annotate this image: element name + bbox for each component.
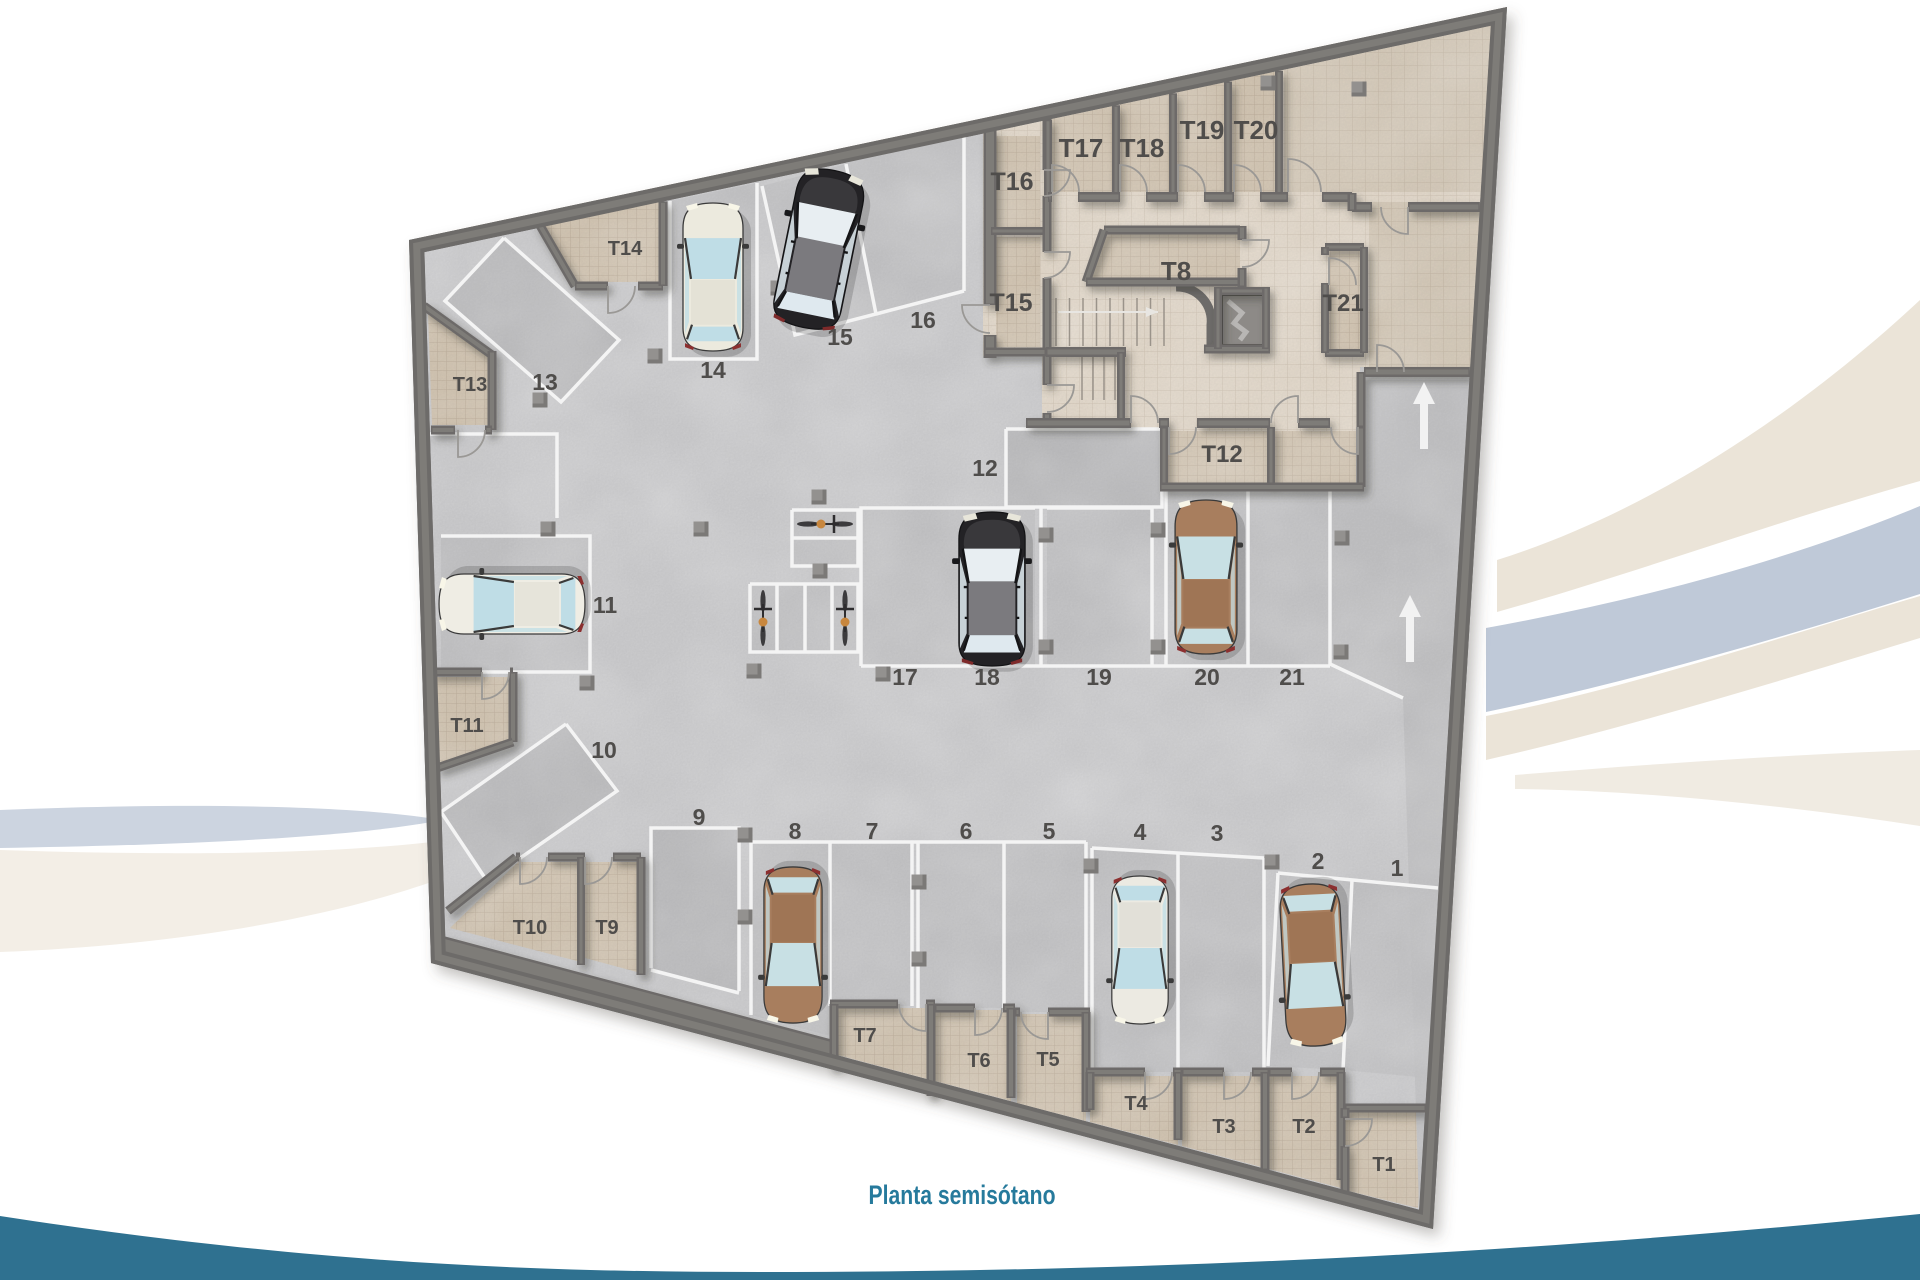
svg-text:T6: T6: [967, 1050, 990, 1072]
svg-text:T3: T3: [1212, 1116, 1235, 1138]
svg-text:Planta semisótano: Planta semisótano: [869, 1180, 1056, 1210]
svg-text:20: 20: [1194, 664, 1220, 690]
svg-text:19: 19: [1086, 664, 1112, 690]
svg-text:4: 4: [1134, 819, 1147, 845]
svg-text:T13: T13: [453, 374, 487, 396]
svg-text:17: 17: [892, 664, 918, 690]
svg-text:13: 13: [532, 369, 558, 395]
svg-text:T21: T21: [1322, 290, 1363, 317]
svg-text:T14: T14: [608, 238, 643, 260]
svg-text:T7: T7: [853, 1025, 876, 1047]
svg-text:11: 11: [593, 592, 618, 618]
svg-text:T9: T9: [595, 917, 618, 939]
svg-text:12: 12: [972, 455, 998, 481]
svg-text:1: 1: [1391, 855, 1404, 881]
svg-text:T10: T10: [513, 917, 547, 939]
svg-text:T17: T17: [1059, 133, 1104, 163]
svg-text:T20: T20: [1234, 115, 1279, 145]
svg-text:T18: T18: [1120, 133, 1165, 163]
svg-text:9: 9: [693, 804, 706, 830]
svg-text:15: 15: [827, 324, 853, 350]
svg-text:7: 7: [866, 818, 879, 844]
svg-text:T11: T11: [450, 715, 483, 737]
svg-text:18: 18: [974, 664, 1000, 690]
svg-text:T1: T1: [1372, 1154, 1395, 1176]
svg-text:6: 6: [960, 818, 973, 844]
svg-text:5: 5: [1043, 818, 1056, 844]
svg-text:T19: T19: [1180, 115, 1225, 145]
svg-text:T16: T16: [990, 168, 1033, 196]
svg-text:3: 3: [1211, 820, 1224, 846]
svg-text:T12: T12: [1201, 441, 1242, 468]
svg-text:8: 8: [789, 818, 802, 844]
svg-text:T5: T5: [1036, 1049, 1059, 1071]
svg-text:T2: T2: [1292, 1116, 1315, 1138]
svg-text:21: 21: [1279, 664, 1305, 690]
svg-text:T8: T8: [1161, 256, 1191, 286]
svg-text:14: 14: [700, 357, 726, 383]
svg-text:T15: T15: [989, 289, 1032, 317]
svg-text:16: 16: [910, 307, 936, 333]
svg-text:2: 2: [1312, 848, 1325, 874]
svg-text:T4: T4: [1124, 1093, 1148, 1115]
svg-text:10: 10: [591, 737, 617, 763]
